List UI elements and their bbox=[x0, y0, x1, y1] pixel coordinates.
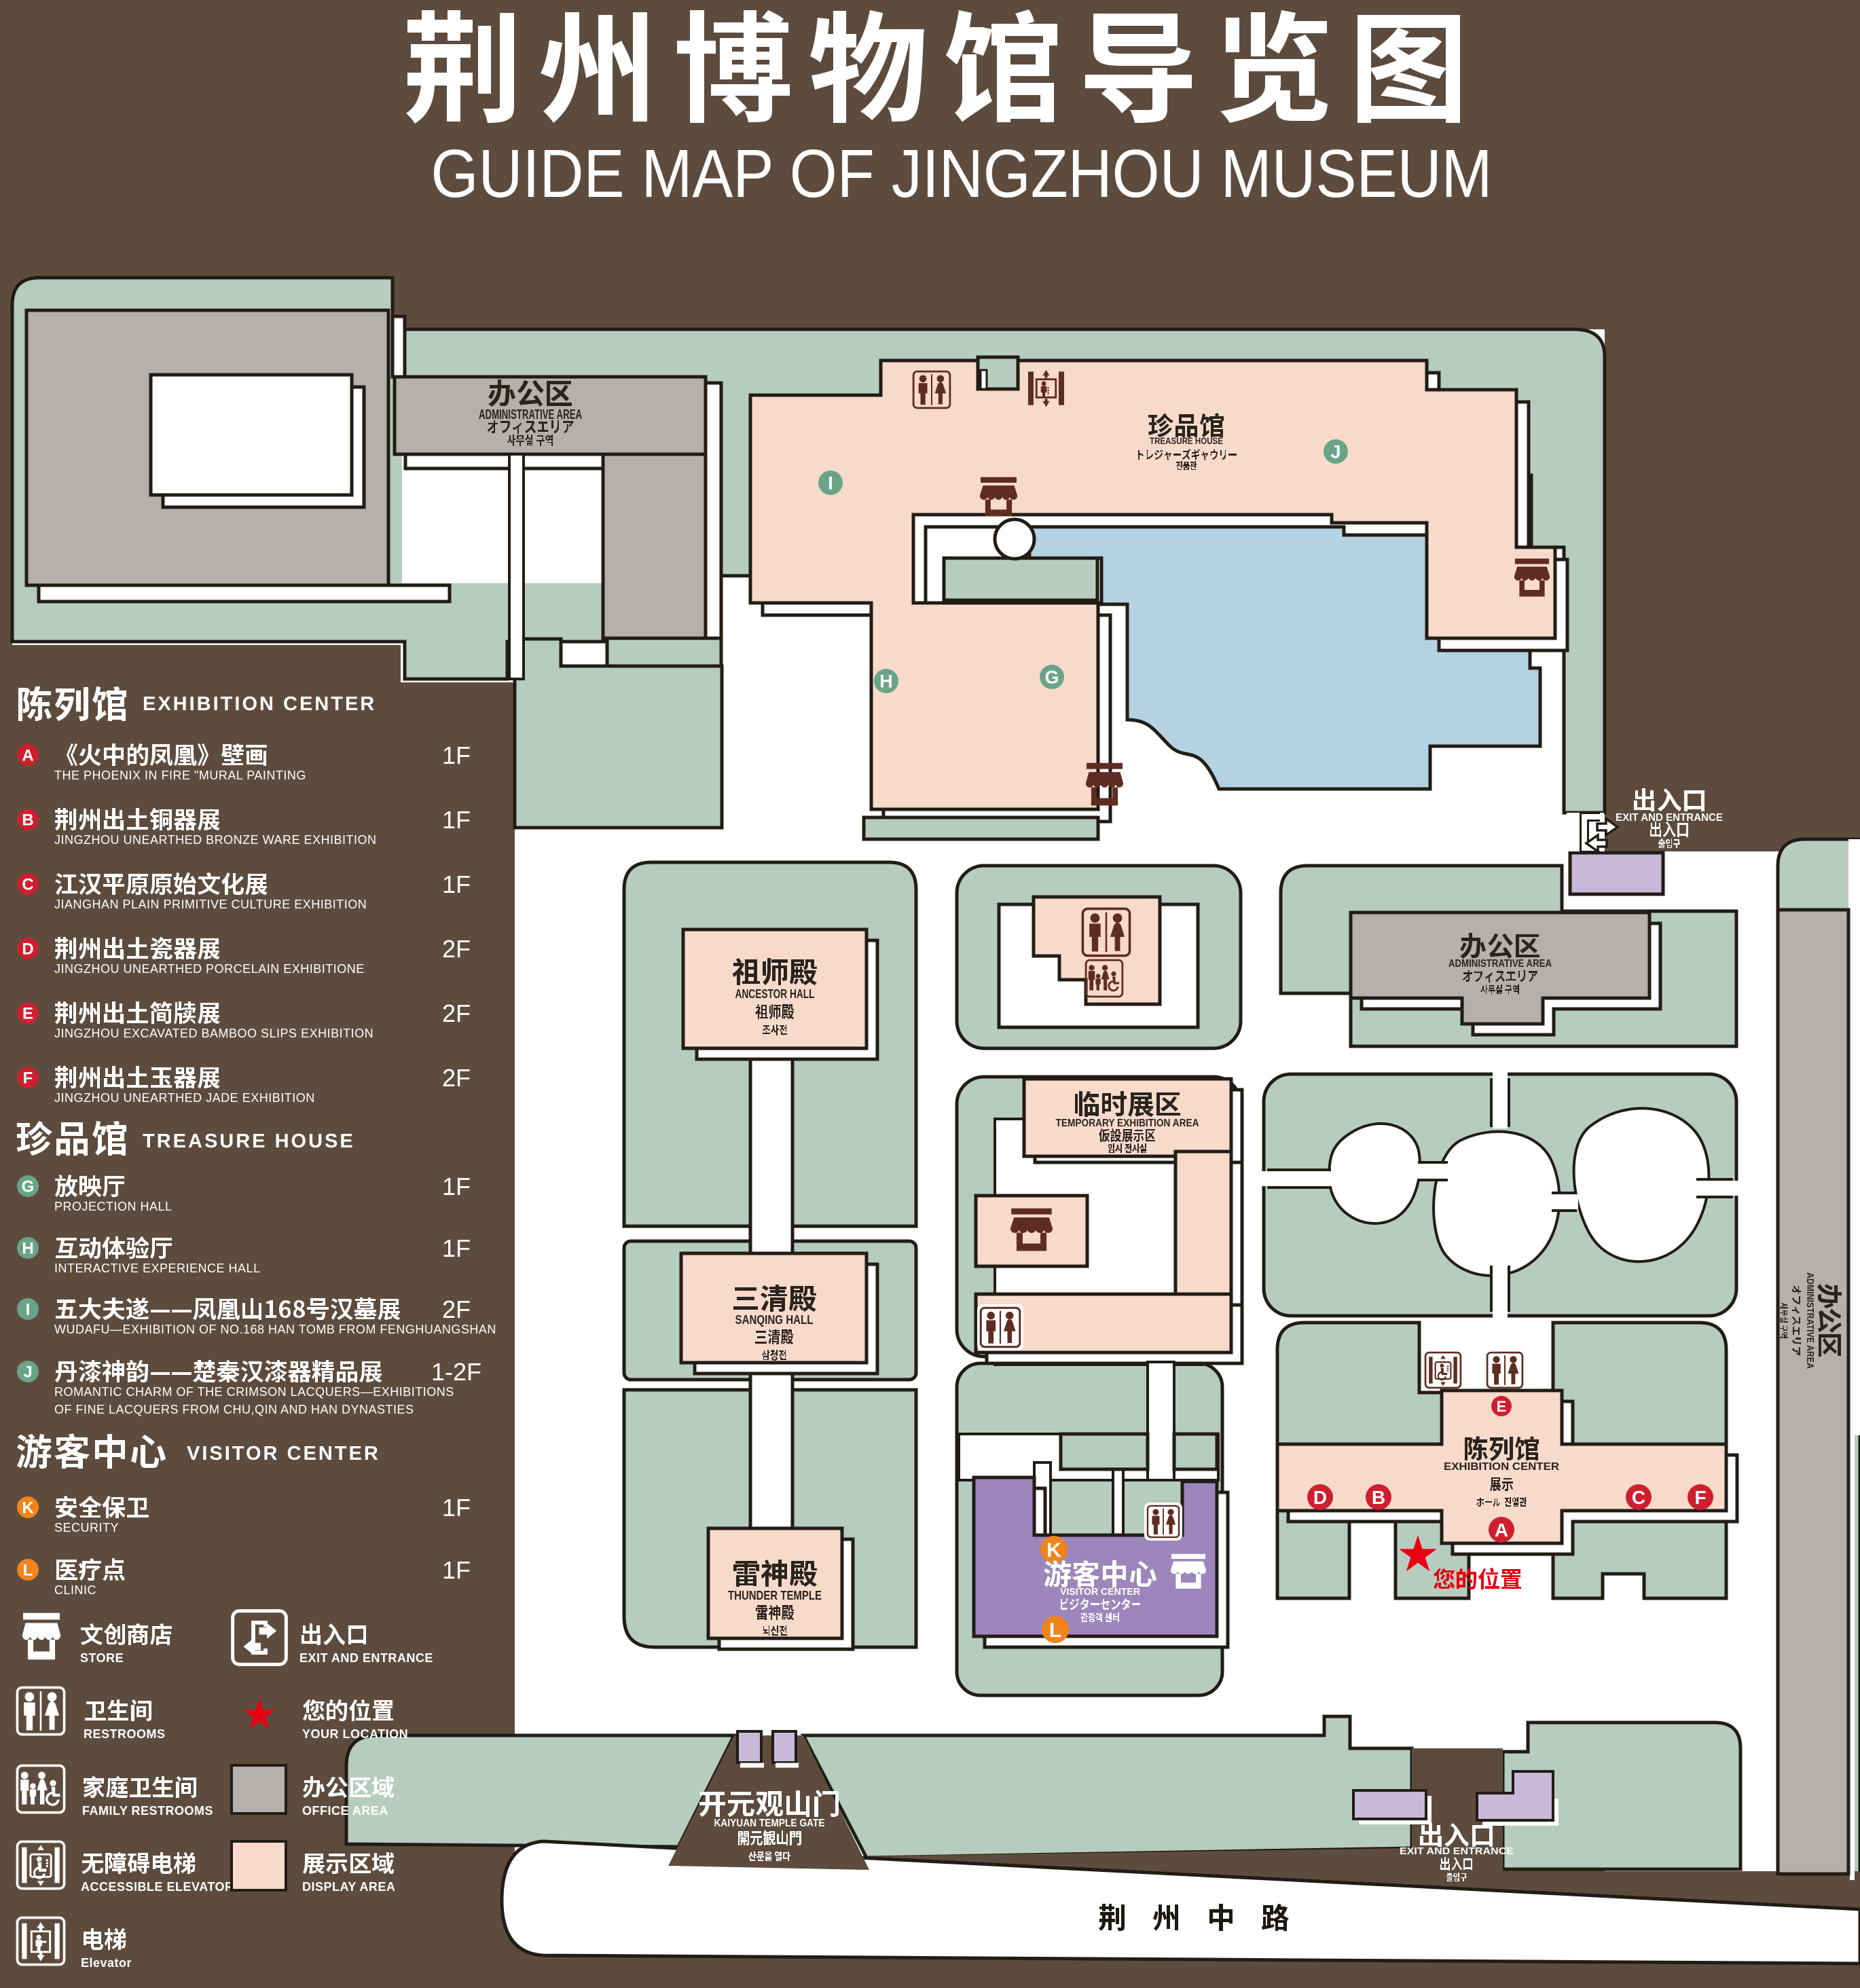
svg-text:1F: 1F bbox=[442, 1234, 471, 1262]
svg-text:ADMINISTRATIVE AREA: ADMINISTRATIVE AREA bbox=[1804, 1272, 1816, 1369]
svg-text:2F: 2F bbox=[442, 935, 471, 963]
svg-text:1F: 1F bbox=[442, 1494, 471, 1522]
svg-text:EXIT AND ENTRANCE: EXIT AND ENTRANCE bbox=[1400, 1845, 1514, 1857]
svg-text:DISPLAY AREA: DISPLAY AREA bbox=[302, 1880, 395, 1894]
svg-text:OFFICE AREA: OFFICE AREA bbox=[302, 1804, 388, 1818]
svg-text:TEMPORARY EXHIBITION AREA: TEMPORARY EXHIBITION AREA bbox=[1056, 1118, 1199, 1129]
svg-text:JIANGHAN PLAIN PRIMITIVE CULTU: JIANGHAN PLAIN PRIMITIVE CULTURE EXHIBIT… bbox=[54, 898, 367, 911]
svg-text:G: G bbox=[1044, 667, 1059, 688]
svg-text:C: C bbox=[1632, 1487, 1645, 1508]
svg-text:D: D bbox=[22, 940, 33, 959]
svg-text:L: L bbox=[1049, 1619, 1061, 1642]
svg-text:1F: 1F bbox=[442, 741, 471, 769]
svg-text:1F: 1F bbox=[442, 1556, 471, 1584]
svg-text:1F: 1F bbox=[442, 806, 471, 834]
svg-text:TREASURE HOUSE: TREASURE HOUSE bbox=[1150, 435, 1223, 446]
svg-text:JINGZHOU UNEARTHED PORCELAIN E: JINGZHOU UNEARTHED PORCELAIN EXHIBITIONE bbox=[54, 962, 365, 976]
svg-text:ACCESSIBLE ELEVATOR: ACCESSIBLE ELEVATOR bbox=[81, 1880, 234, 1894]
svg-text:1F: 1F bbox=[442, 1173, 471, 1200]
svg-text:G: G bbox=[22, 1178, 35, 1196]
svg-text:VISITOR CENTER: VISITOR CENTER bbox=[1060, 1586, 1140, 1598]
svg-text:E: E bbox=[22, 1005, 33, 1023]
svg-text:EXIT AND ENTRANCE: EXIT AND ENTRANCE bbox=[1616, 812, 1723, 824]
svg-text:I: I bbox=[828, 473, 833, 494]
svg-text:INTERACTIVE EXPERIENCE HALL: INTERACTIVE EXPERIENCE HALL bbox=[54, 1262, 261, 1275]
svg-text:J: J bbox=[1330, 442, 1341, 462]
svg-text:OF FINE LACQUERS FROM CHU,QIN: OF FINE LACQUERS FROM CHU,QIN AND HAN DY… bbox=[54, 1403, 414, 1416]
svg-text:CLINIC: CLINIC bbox=[54, 1583, 96, 1597]
svg-text:JINGZHOU UNEARTHED BRONZE WARE: JINGZHOU UNEARTHED BRONZE WARE EXHIBITIO… bbox=[54, 833, 377, 847]
svg-text:F: F bbox=[23, 1069, 33, 1088]
svg-text:B: B bbox=[1372, 1487, 1385, 1508]
svg-text:1-2F: 1-2F bbox=[431, 1358, 481, 1386]
svg-text:K: K bbox=[1046, 1539, 1061, 1562]
svg-text:VISITOR CENTER: VISITOR CENTER bbox=[187, 1443, 380, 1465]
svg-text:THUNDER TEMPLE: THUNDER TEMPLE bbox=[728, 1589, 822, 1602]
svg-text:H: H bbox=[22, 1240, 33, 1258]
svg-text:I: I bbox=[26, 1301, 31, 1319]
svg-text:A: A bbox=[1495, 1520, 1508, 1541]
svg-text:GUIDE MAP OF JINGZHOU MUSEUM: GUIDE MAP OF JINGZHOU MUSEUM bbox=[431, 136, 1493, 212]
svg-text:TREASURE HOUSE: TREASURE HOUSE bbox=[143, 1130, 355, 1152]
svg-text:ADMINISTRATIVE AREA: ADMINISTRATIVE AREA bbox=[479, 407, 582, 422]
svg-text:EXHIBITION CENTER: EXHIBITION CENTER bbox=[143, 693, 376, 715]
svg-text:SANQING HALL: SANQING HALL bbox=[735, 1313, 814, 1327]
svg-text:FAMILY RESTROOMS: FAMILY RESTROOMS bbox=[82, 1804, 213, 1818]
svg-text:JINGZHOU UNEARTHED JADE EXHIBI: JINGZHOU UNEARTHED JADE EXHIBITION bbox=[54, 1091, 315, 1105]
svg-text:A: A bbox=[22, 747, 33, 765]
svg-text:RESTROOMS: RESTROOMS bbox=[84, 1727, 166, 1741]
svg-text:J: J bbox=[23, 1363, 32, 1382]
svg-text:1F: 1F bbox=[442, 870, 471, 898]
svg-text:YOUR LOCATION: YOUR LOCATION bbox=[302, 1727, 408, 1741]
svg-text:H: H bbox=[879, 671, 893, 692]
svg-text:2F: 2F bbox=[442, 1064, 471, 1092]
svg-text:ANCESTOR HALL: ANCESTOR HALL bbox=[735, 987, 815, 1001]
svg-text:PROJECTION HALL: PROJECTION HALL bbox=[54, 1200, 172, 1213]
svg-text:B: B bbox=[22, 811, 33, 830]
svg-text:C: C bbox=[22, 876, 33, 894]
svg-text:THE PHOENIX IN FIRE "MURAL PAI: THE PHOENIX IN FIRE "MURAL PAINTING bbox=[54, 769, 306, 782]
svg-text:2F: 2F bbox=[442, 999, 471, 1027]
svg-text:WUDAFU—EXHIBITION OF NO.168 HA: WUDAFU—EXHIBITION OF NO.168 HAN TOMB FRO… bbox=[54, 1323, 496, 1336]
svg-text:E: E bbox=[1497, 1398, 1507, 1415]
svg-text:F: F bbox=[1694, 1487, 1706, 1508]
svg-text:K: K bbox=[22, 1499, 34, 1517]
svg-text:2F: 2F bbox=[442, 1295, 471, 1323]
svg-text:ROMANTIC CHARM OF THE CRIMSON: ROMANTIC CHARM OF THE CRIMSON LACQUERS—E… bbox=[54, 1385, 454, 1399]
svg-text:Elevator: Elevator bbox=[81, 1956, 132, 1970]
svg-text:EXHIBITION CENTER: EXHIBITION CENTER bbox=[1444, 1461, 1559, 1473]
svg-text:EXIT AND ENTRANCE: EXIT AND ENTRANCE bbox=[299, 1651, 433, 1665]
svg-text:JINGZHOU EXCAVATED BAMBOO SLIP: JINGZHOU EXCAVATED BAMBOO SLIPS EXHIBITI… bbox=[54, 1027, 373, 1040]
svg-text:SECURITY: SECURITY bbox=[54, 1521, 119, 1534]
svg-text:L: L bbox=[23, 1562, 33, 1580]
svg-text:D: D bbox=[1313, 1487, 1327, 1508]
svg-text:ADMINISTRATIVE AREA: ADMINISTRATIVE AREA bbox=[1448, 958, 1552, 970]
svg-text:KAIYUAN TEMPLE GATE: KAIYUAN TEMPLE GATE bbox=[714, 1818, 825, 1829]
svg-text:STORE: STORE bbox=[80, 1651, 124, 1665]
